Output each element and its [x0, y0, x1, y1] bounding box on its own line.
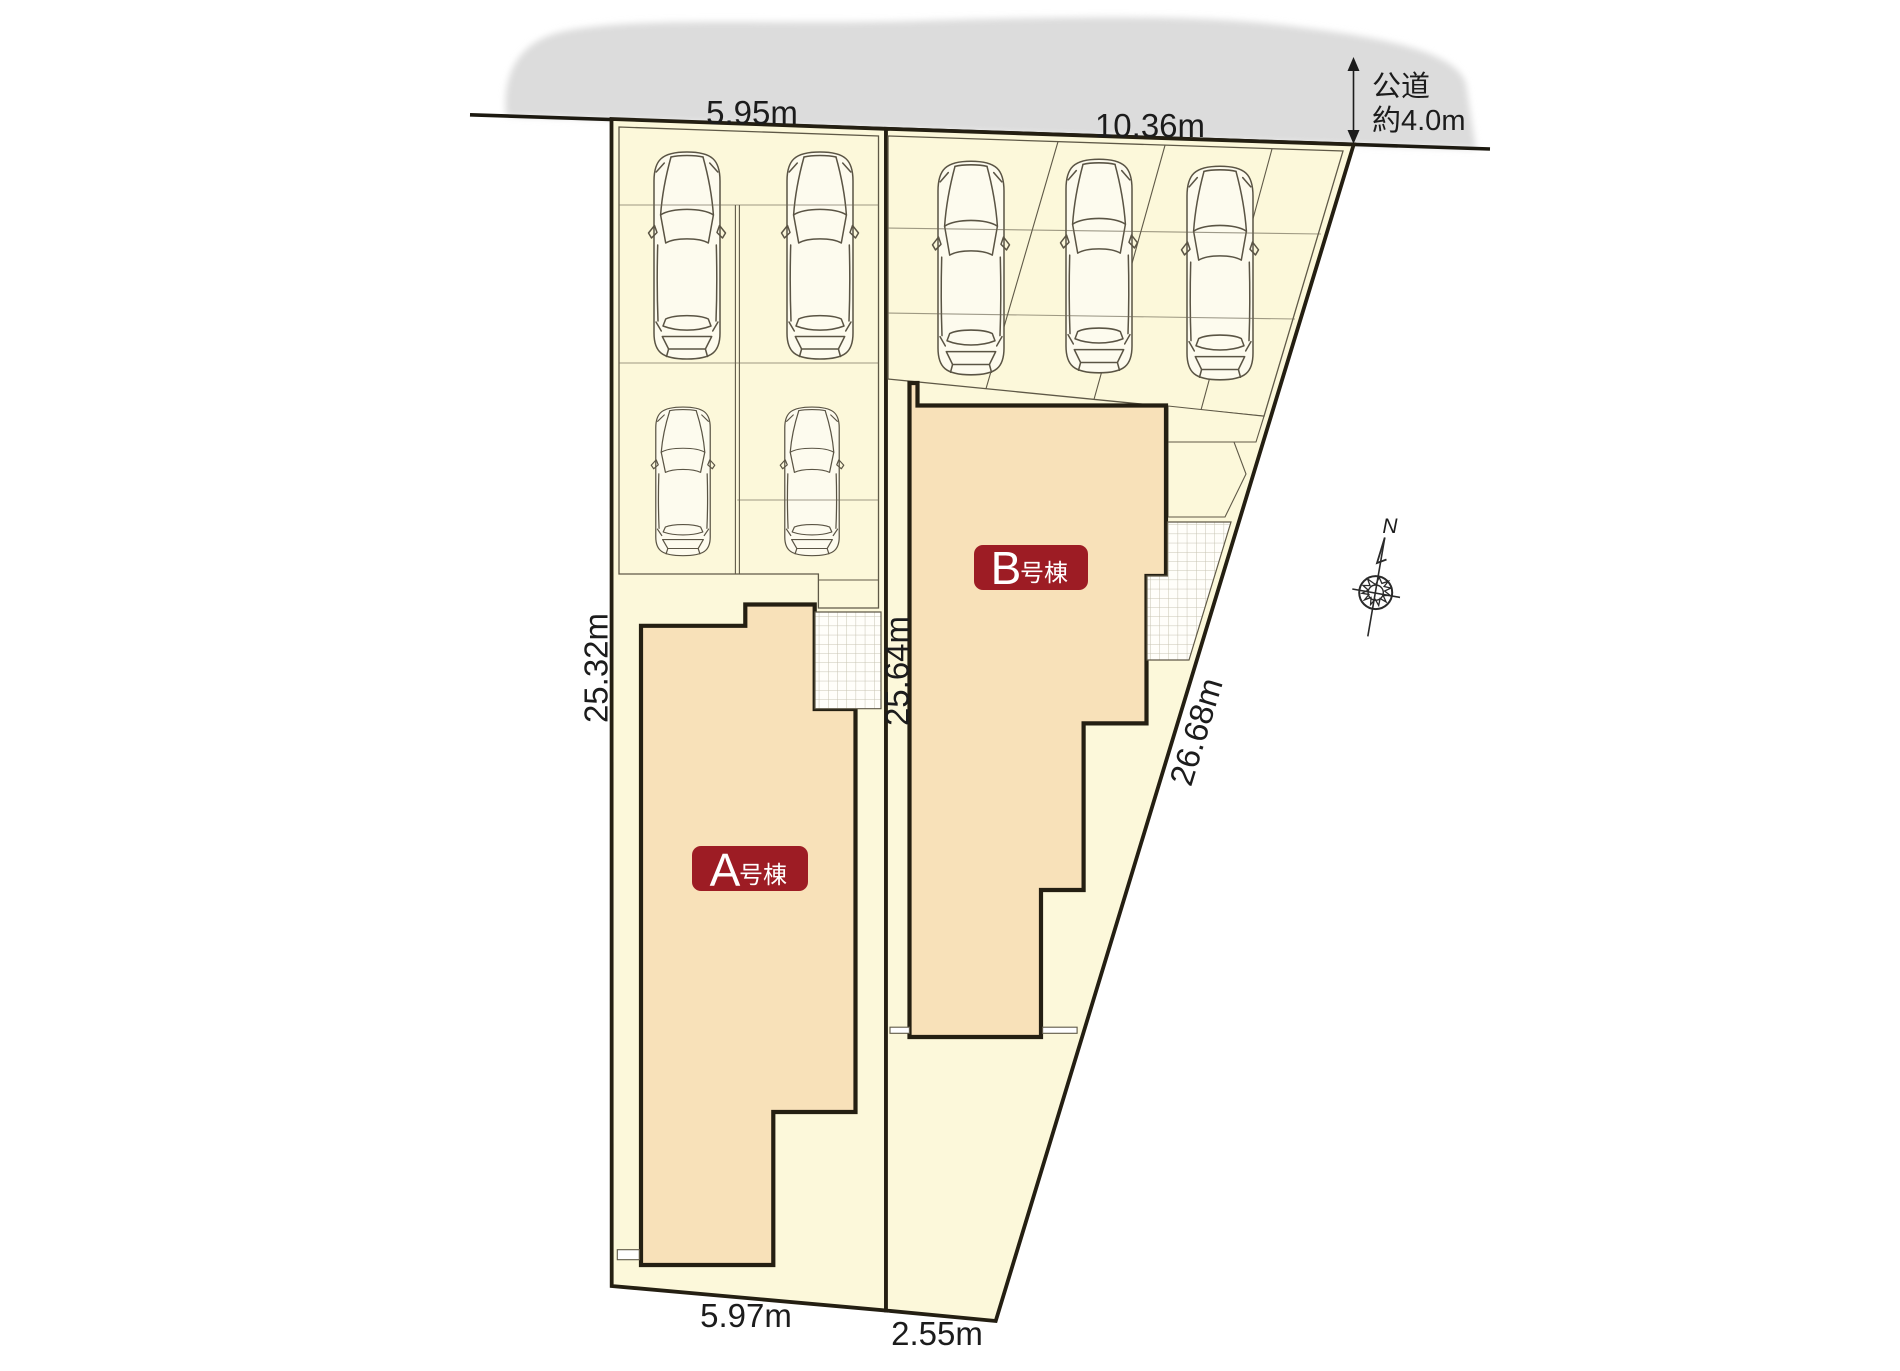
svg-text:N: N: [1382, 515, 1398, 538]
svg-text:5.95m: 5.95m: [706, 94, 798, 131]
svg-text:A: A: [710, 844, 741, 896]
svg-text:10.36m: 10.36m: [1095, 107, 1205, 144]
svg-text:号棟: 号棟: [739, 862, 787, 889]
svg-text:公道: 公道: [1372, 70, 1430, 103]
svg-text:5.97m: 5.97m: [700, 1297, 792, 1334]
svg-text:2.55m: 2.55m: [891, 1315, 983, 1352]
svg-text:25.64m: 25.64m: [879, 616, 916, 726]
svg-text:約4.0m: 約4.0m: [1372, 104, 1465, 137]
svg-text:B: B: [991, 542, 1022, 594]
svg-text:25.32m: 25.32m: [578, 613, 615, 723]
svg-text:号棟: 号棟: [1020, 560, 1068, 587]
